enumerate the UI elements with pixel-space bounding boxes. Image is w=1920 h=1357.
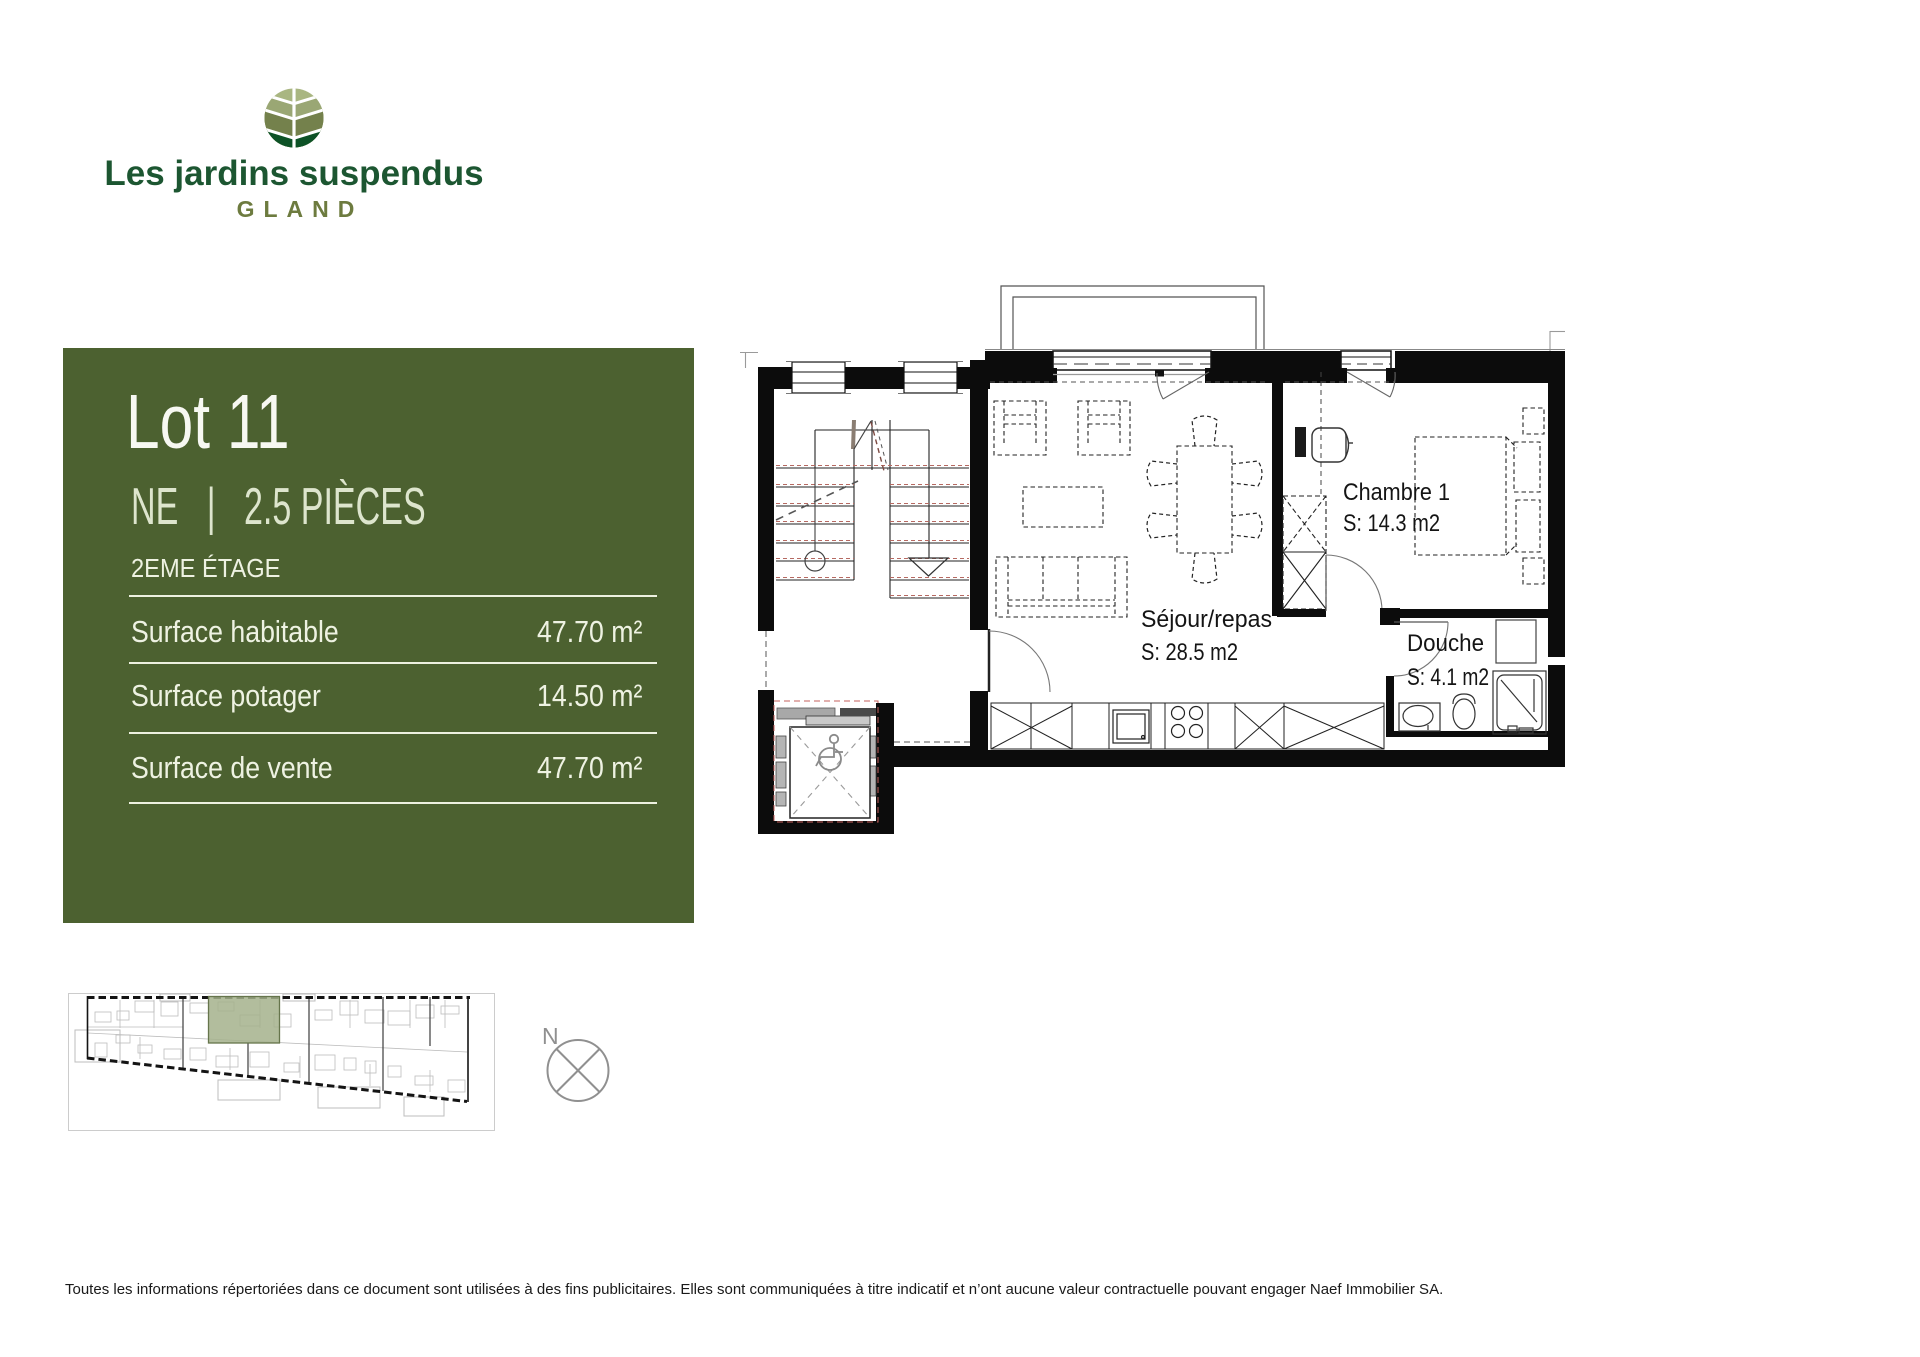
svg-text:S: 28.5 m2: S: 28.5 m2 <box>1141 639 1238 666</box>
svg-text:S: 4.1 m2: S: 4.1 m2 <box>1407 664 1489 691</box>
svg-text:S: 14.3 m2: S: 14.3 m2 <box>1343 510 1440 537</box>
svg-text:Séjour/repas: Séjour/repas <box>1141 606 1272 633</box>
svg-text:N: N <box>542 1023 559 1049</box>
svg-text:Douche: Douche <box>1407 630 1484 657</box>
svg-text:Chambre 1: Chambre 1 <box>1343 479 1450 506</box>
